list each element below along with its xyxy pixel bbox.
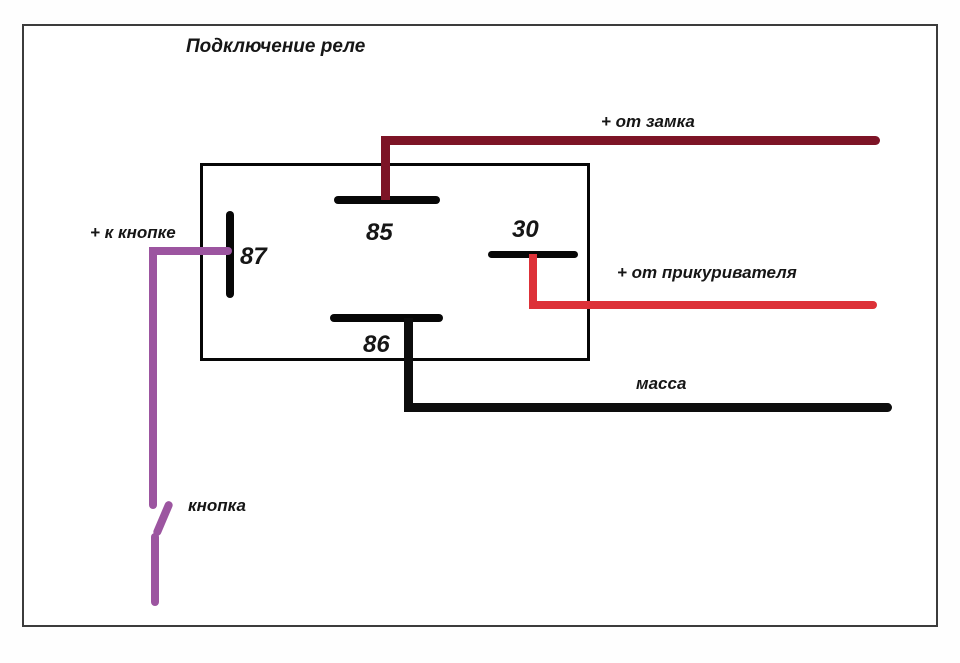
terminal-86-label: 86	[363, 333, 390, 357]
button-wire-vertical-segment	[149, 247, 157, 509]
lighter-wire-horizontal-segment	[529, 301, 877, 309]
terminal-86-bar	[330, 314, 443, 322]
diagram-title: Подключение реле	[186, 37, 365, 56]
terminal-87-label: 87	[240, 245, 267, 269]
ground-wire-horizontal-segment	[404, 403, 892, 412]
terminal-85-label: 85	[366, 221, 393, 245]
lock-wire-vertical-segment	[381, 136, 390, 200]
ground-wire-label: масса	[636, 375, 686, 392]
wiring-diagram: Подключение реле 85 30 86 87 + от замка …	[0, 0, 960, 663]
button-wire-horizontal-segment	[149, 247, 232, 255]
button-wire-lower-segment	[151, 533, 159, 606]
ground-wire-vertical-segment	[404, 318, 413, 412]
lock-wire-horizontal-segment	[381, 136, 880, 145]
terminal-30-label: 30	[512, 218, 539, 242]
button-switch-label: кнопка	[188, 497, 246, 514]
lighter-wire-label: + от прикуривателя	[617, 264, 797, 281]
lock-wire-label: + от замка	[601, 113, 695, 130]
button-wire-label: + к кнопке	[90, 224, 176, 241]
